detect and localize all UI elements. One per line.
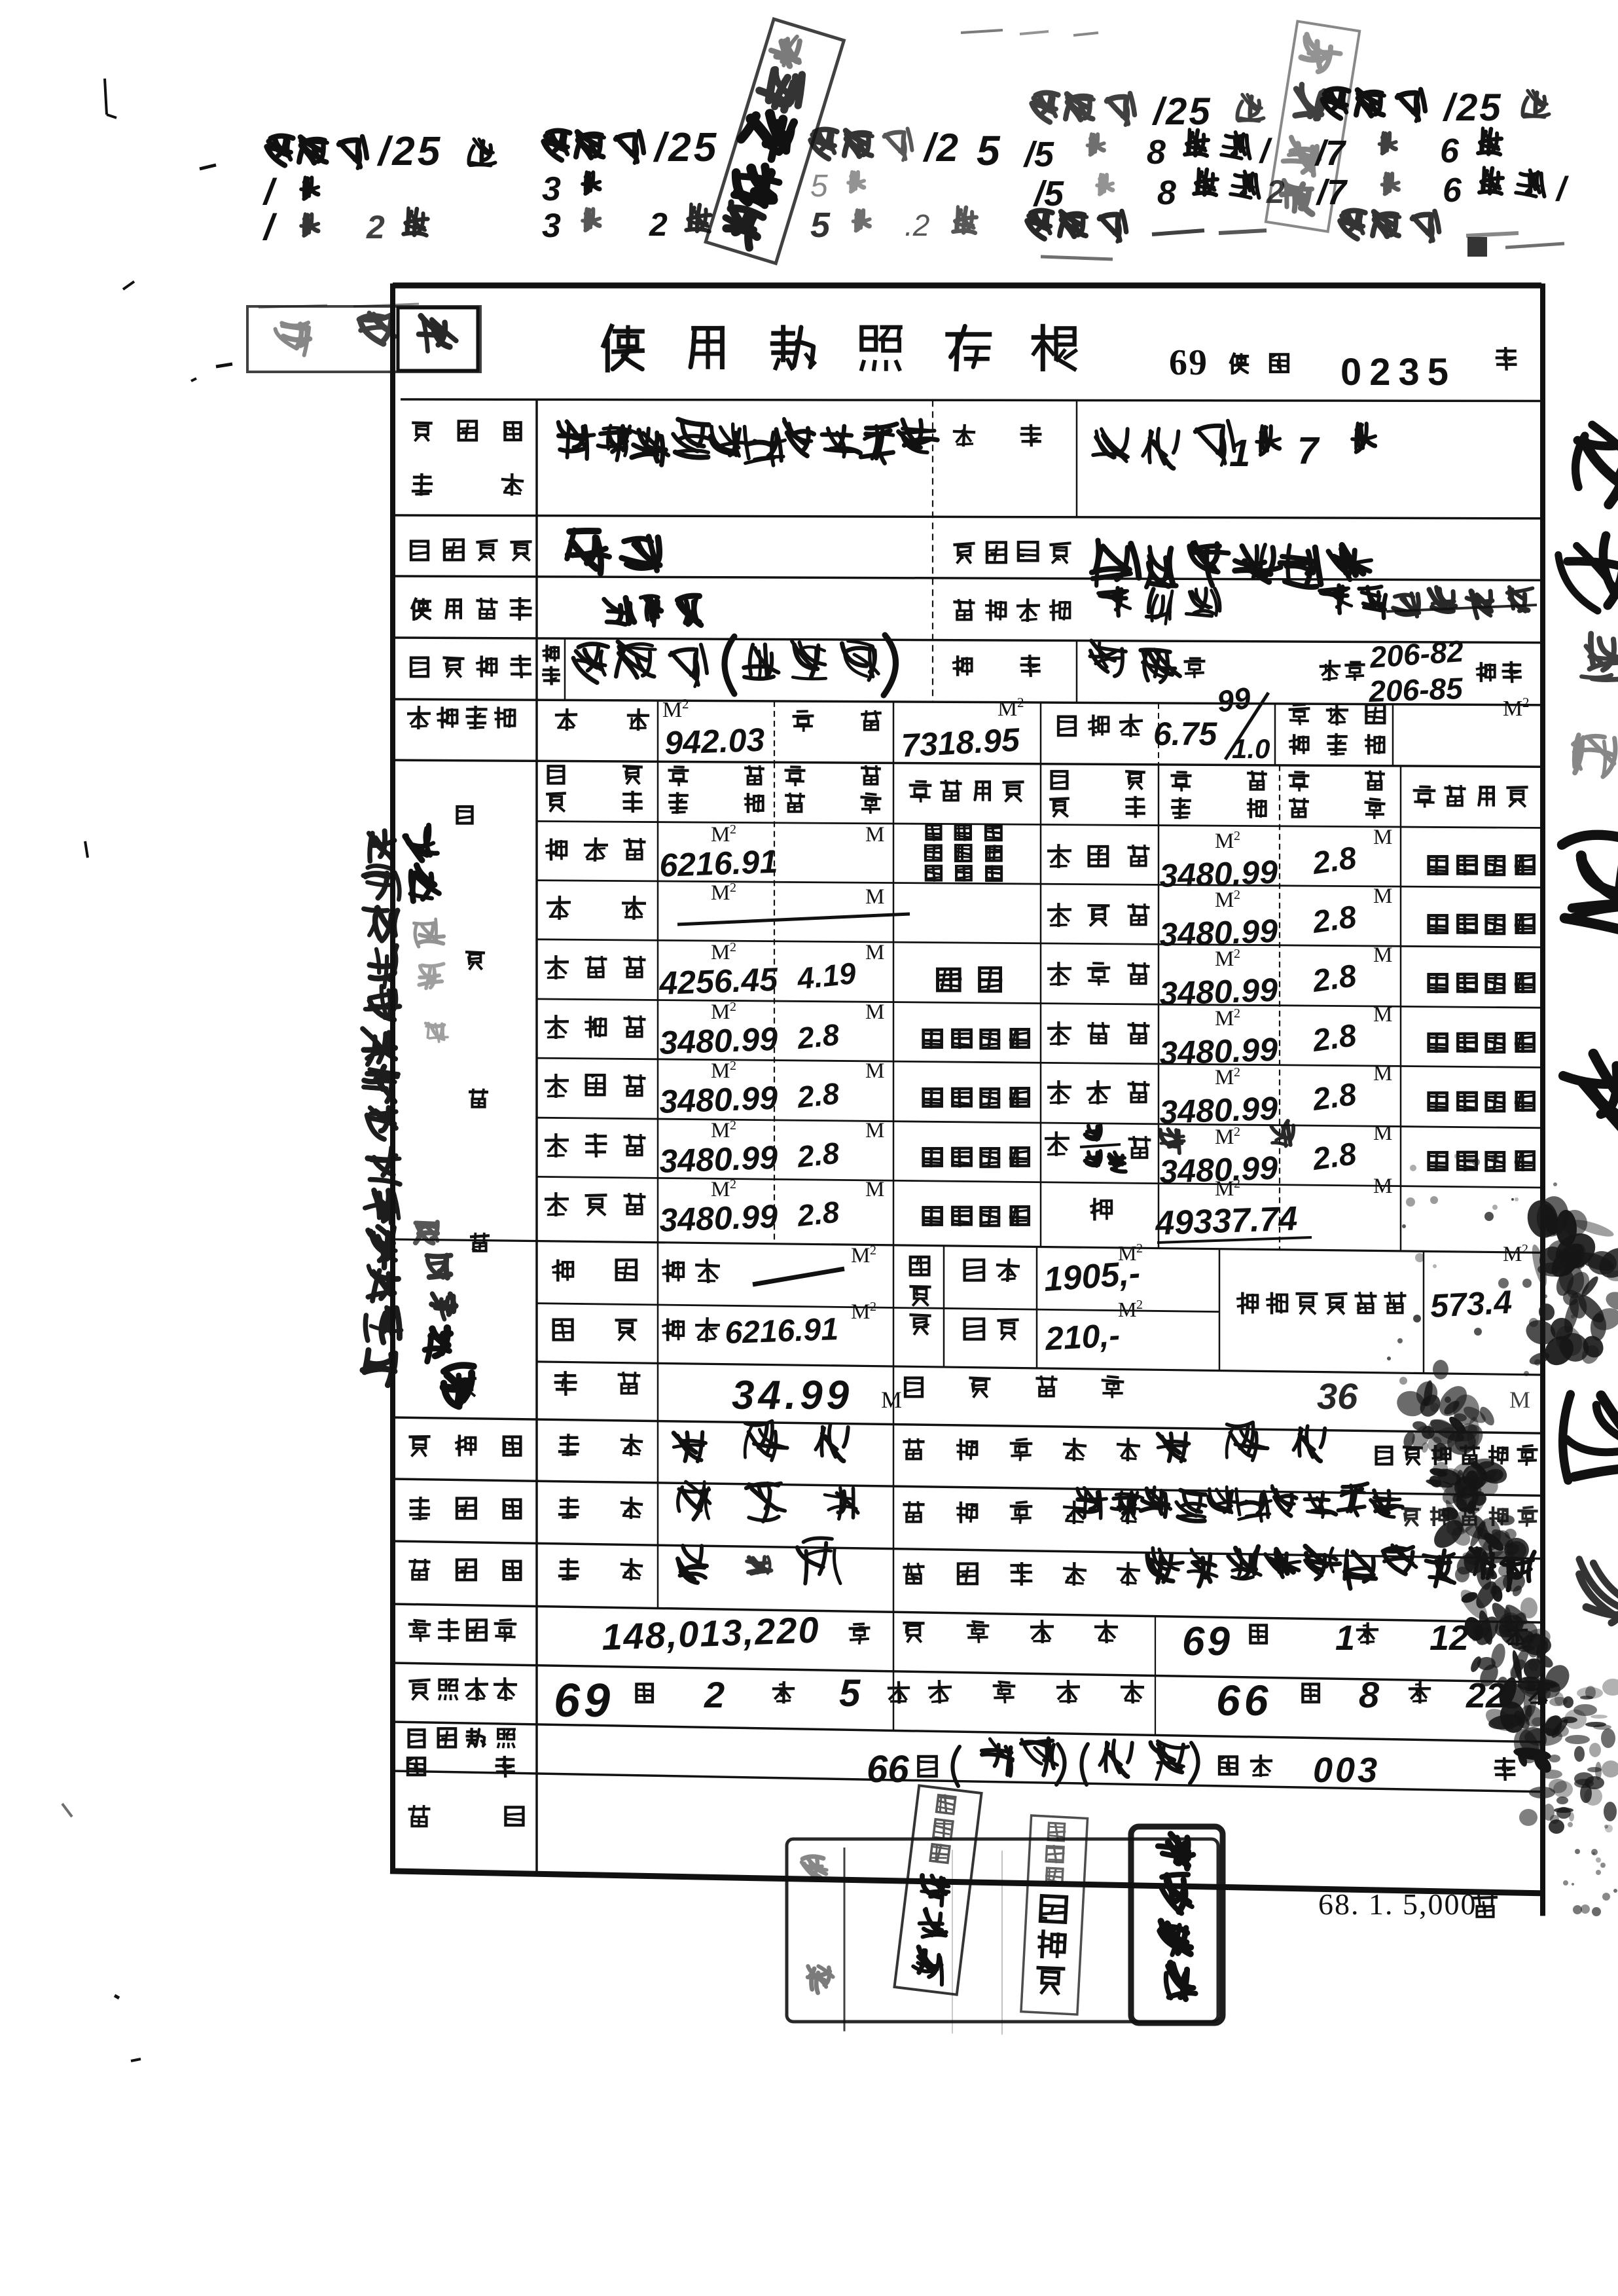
svg-text:/5: /5 xyxy=(1023,135,1054,174)
svg-text:M: M xyxy=(1373,826,1392,849)
svg-text:M: M xyxy=(851,1244,870,1267)
svg-text:2.8: 2.8 xyxy=(1310,841,1359,881)
svg-text:5: 5 xyxy=(839,1672,861,1715)
svg-text:69: 69 xyxy=(1182,1619,1232,1664)
svg-text:2: 2 xyxy=(1234,829,1240,843)
svg-text:M: M xyxy=(1373,1062,1392,1085)
svg-text:.2: .2 xyxy=(905,208,929,242)
svg-text:3: 3 xyxy=(542,207,561,245)
svg-text:2: 2 xyxy=(730,881,736,895)
svg-text:2: 2 xyxy=(730,1118,736,1133)
svg-text:12: 12 xyxy=(1429,1618,1469,1658)
svg-text:M: M xyxy=(711,1119,730,1142)
svg-text:2: 2 xyxy=(1234,947,1240,961)
svg-text:/25: /25 xyxy=(1442,86,1503,129)
svg-text:M: M xyxy=(1118,1298,1136,1321)
svg-text:/25: /25 xyxy=(653,125,719,170)
svg-text:M: M xyxy=(1373,1121,1392,1145)
svg-text:2: 2 xyxy=(649,206,668,243)
svg-text:573.4: 573.4 xyxy=(1429,1284,1513,1324)
svg-text:M: M xyxy=(865,1119,884,1142)
svg-text:5: 5 xyxy=(810,169,828,204)
svg-text:2: 2 xyxy=(682,696,689,712)
svg-text:3480.99: 3480.99 xyxy=(658,1021,778,1061)
svg-text:6216.91: 6216.91 xyxy=(725,1312,839,1351)
svg-text:/25: /25 xyxy=(376,129,442,174)
svg-text:M: M xyxy=(1215,829,1234,853)
svg-text:M: M xyxy=(865,941,884,964)
svg-text:0235: 0235 xyxy=(1340,351,1456,393)
svg-text:M: M xyxy=(711,823,730,847)
svg-text:M: M xyxy=(1215,1007,1234,1030)
svg-text:M: M xyxy=(1215,1066,1234,1089)
svg-text:M: M xyxy=(865,1178,884,1201)
svg-text:M: M xyxy=(1215,1177,1234,1201)
svg-text:M: M xyxy=(711,1178,730,1201)
svg-text:206-82: 206-82 xyxy=(1368,634,1465,674)
svg-text:8: 8 xyxy=(1157,174,1176,212)
svg-text:2: 2 xyxy=(704,1674,725,1715)
svg-text:5: 5 xyxy=(977,127,1001,174)
svg-text:2: 2 xyxy=(730,822,736,837)
svg-text:36: 36 xyxy=(1317,1376,1358,1417)
svg-text:/25: /25 xyxy=(1151,90,1212,133)
svg-text:66: 66 xyxy=(867,1748,909,1791)
svg-text:66: 66 xyxy=(1216,1676,1272,1724)
svg-text:M: M xyxy=(662,698,682,722)
svg-text:M: M xyxy=(1373,943,1392,967)
svg-text:3480.99: 3480.99 xyxy=(658,1139,778,1180)
svg-text:7: 7 xyxy=(1297,429,1320,472)
svg-text:M: M xyxy=(865,1000,884,1024)
svg-text:M: M xyxy=(711,881,730,905)
svg-text:5: 5 xyxy=(810,206,831,245)
svg-text:3480.99: 3480.99 xyxy=(658,1080,778,1120)
svg-text:2.8: 2.8 xyxy=(1310,1077,1359,1118)
svg-text:2.8: 2.8 xyxy=(1310,958,1359,999)
svg-text:6.75: 6.75 xyxy=(1153,716,1218,752)
svg-text:2: 2 xyxy=(366,209,385,246)
svg-text:2: 2 xyxy=(1136,1241,1143,1256)
svg-text:6: 6 xyxy=(1443,172,1462,210)
svg-text:M: M xyxy=(1373,1175,1392,1198)
svg-text:M: M xyxy=(998,697,1017,721)
svg-text:1.0: 1.0 xyxy=(1232,733,1270,764)
svg-text:1: 1 xyxy=(1229,432,1250,475)
svg-text:/5: /5 xyxy=(1033,174,1064,213)
svg-text:3: 3 xyxy=(542,170,561,208)
svg-text:2: 2 xyxy=(1234,888,1240,902)
svg-text:2: 2 xyxy=(730,1059,736,1073)
svg-text:2.8: 2.8 xyxy=(1310,1018,1359,1059)
svg-text:34.99: 34.99 xyxy=(732,1373,853,1418)
svg-text:M: M xyxy=(1503,697,1522,721)
svg-text:M: M xyxy=(1509,1387,1530,1413)
svg-text:M: M xyxy=(711,1059,730,1083)
svg-text:4256.45: 4256.45 xyxy=(658,961,779,1002)
svg-text:942.03: 942.03 xyxy=(664,721,765,761)
svg-text:2.8: 2.8 xyxy=(1310,900,1359,940)
svg-text:2: 2 xyxy=(1522,695,1530,710)
svg-text:2.8: 2.8 xyxy=(795,1136,841,1175)
svg-text:M: M xyxy=(1503,1243,1522,1266)
svg-text:M: M xyxy=(1215,947,1234,971)
svg-text:2: 2 xyxy=(1522,1242,1528,1256)
svg-text:6: 6 xyxy=(1440,132,1460,170)
svg-text:M: M xyxy=(865,1059,884,1083)
svg-text:003: 003 xyxy=(1313,1751,1380,1790)
svg-text:7318.95: 7318.95 xyxy=(901,721,1022,764)
svg-text:2: 2 xyxy=(1234,1176,1240,1191)
svg-text:2: 2 xyxy=(730,940,736,955)
svg-text:M: M xyxy=(851,1300,870,1324)
svg-text:2.8: 2.8 xyxy=(1310,1137,1359,1177)
svg-text:M: M xyxy=(711,941,730,964)
svg-text:68. 1. 5,000: 68. 1. 5,000 xyxy=(1318,1887,1477,1921)
svg-text:M: M xyxy=(1373,884,1392,908)
svg-text:M: M xyxy=(1373,1003,1392,1027)
svg-text:2: 2 xyxy=(1234,1125,1240,1139)
svg-text:2: 2 xyxy=(870,1300,876,1314)
svg-text:8: 8 xyxy=(1147,134,1166,172)
svg-text:M: M xyxy=(865,885,884,909)
svg-text:2: 2 xyxy=(1234,1006,1240,1021)
svg-text:2.8: 2.8 xyxy=(795,1195,841,1233)
svg-text:M: M xyxy=(1118,1241,1136,1265)
svg-text:M: M xyxy=(881,1387,902,1413)
svg-text:6216.91: 6216.91 xyxy=(658,843,778,884)
svg-text:206-85: 206-85 xyxy=(1368,671,1464,708)
svg-text:3480.99: 3480.99 xyxy=(1159,972,1278,1012)
svg-text:99: 99 xyxy=(1215,680,1253,719)
svg-text:8: 8 xyxy=(1359,1674,1380,1715)
svg-text:148,013,220: 148,013,220 xyxy=(601,1609,820,1658)
svg-text:3480.99: 3480.99 xyxy=(658,1198,778,1239)
svg-text:4.19: 4.19 xyxy=(795,956,858,996)
svg-text:3480.99: 3480.99 xyxy=(1159,1090,1278,1131)
svg-text:210,-: 210,- xyxy=(1044,1317,1121,1357)
svg-text:M: M xyxy=(711,1000,730,1024)
svg-text:69: 69 xyxy=(1169,342,1208,383)
svg-text:2: 2 xyxy=(730,1177,736,1192)
svg-text:69: 69 xyxy=(554,1675,614,1727)
svg-text:49337.74: 49337.74 xyxy=(1154,1199,1298,1243)
svg-text:2.8: 2.8 xyxy=(795,1076,841,1115)
svg-text:2.8: 2.8 xyxy=(795,1017,841,1056)
svg-text:M: M xyxy=(865,823,884,847)
svg-text:1: 1 xyxy=(1335,1618,1355,1658)
svg-text:2: 2 xyxy=(1234,1065,1240,1080)
svg-text:2: 2 xyxy=(730,1000,736,1014)
svg-text:M: M xyxy=(1215,1125,1234,1149)
svg-text:2: 2 xyxy=(1017,695,1024,710)
svg-text:2: 2 xyxy=(1136,1298,1143,1312)
svg-text:/2: /2 xyxy=(922,126,960,170)
svg-text:M: M xyxy=(1215,888,1234,912)
svg-text:2: 2 xyxy=(870,1243,876,1258)
